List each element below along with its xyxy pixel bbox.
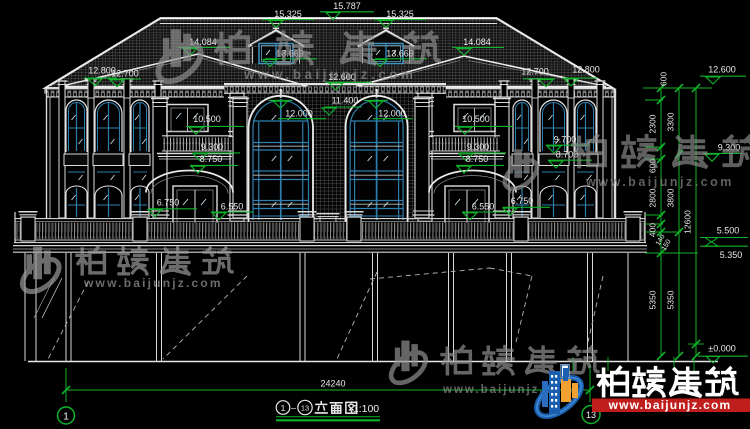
svg-text:15.325: 15.325 — [386, 9, 414, 19]
svg-text:1: 1 — [63, 411, 69, 423]
svg-text:400: 400 — [648, 223, 658, 237]
svg-text:11.400: 11.400 — [332, 96, 359, 106]
svg-text:12.000: 12.000 — [378, 109, 406, 119]
svg-text:5350: 5350 — [648, 290, 658, 309]
svg-text:12.700: 12.700 — [111, 69, 139, 79]
svg-text:6.550: 6.550 — [472, 202, 495, 212]
svg-text:12.000: 12.000 — [285, 109, 313, 119]
svg-text:5350: 5350 — [666, 290, 676, 309]
svg-text:12600: 12600 — [683, 210, 693, 234]
svg-text:1: 1 — [281, 403, 286, 413]
svg-text:6.750: 6.750 — [157, 197, 180, 207]
svg-text:12.600: 12.600 — [708, 65, 736, 75]
svg-text:3300: 3300 — [666, 112, 676, 131]
svg-text:±0.000: ±0.000 — [708, 344, 735, 354]
svg-text:5.500: 5.500 — [717, 226, 740, 236]
svg-text:3800: 3800 — [666, 188, 676, 207]
svg-text:1:100: 1:100 — [353, 403, 379, 415]
svg-text:14.084: 14.084 — [463, 37, 491, 47]
svg-text:6.750: 6.750 — [511, 196, 534, 206]
svg-text:www.baijunjz.com: www.baijunjz.com — [243, 67, 417, 82]
svg-text:www.baijunjz.com: www.baijunjz.com — [585, 175, 734, 189]
svg-text:5.350: 5.350 — [720, 250, 743, 260]
svg-text:9.300: 9.300 — [201, 142, 224, 152]
svg-text:8.750: 8.750 — [466, 154, 489, 164]
svg-text:www.baijunjz.com: www.baijunjz.com — [608, 398, 732, 412]
svg-text:24240: 24240 — [320, 379, 345, 389]
svg-text:8.750: 8.750 — [200, 154, 223, 164]
svg-text:12.800: 12.800 — [572, 65, 600, 75]
svg-text:13.669: 13.669 — [386, 49, 414, 59]
svg-text:–: – — [291, 403, 296, 413]
svg-text:15.787: 15.787 — [333, 1, 361, 11]
svg-text:2300: 2300 — [648, 114, 658, 133]
svg-text:12.700: 12.700 — [521, 67, 549, 77]
svg-text:2800: 2800 — [648, 188, 658, 207]
svg-text:15.325: 15.325 — [274, 9, 302, 19]
svg-text:www.baijunjz.com: www.baijunjz.com — [83, 276, 223, 290]
svg-text:9.300: 9.300 — [467, 142, 490, 152]
svg-text:13: 13 — [301, 403, 309, 412]
svg-text:10.500: 10.500 — [193, 114, 221, 124]
svg-text:6.550: 6.550 — [221, 202, 244, 212]
svg-text:10.500: 10.500 — [462, 114, 490, 124]
svg-text:600: 600 — [659, 72, 669, 86]
